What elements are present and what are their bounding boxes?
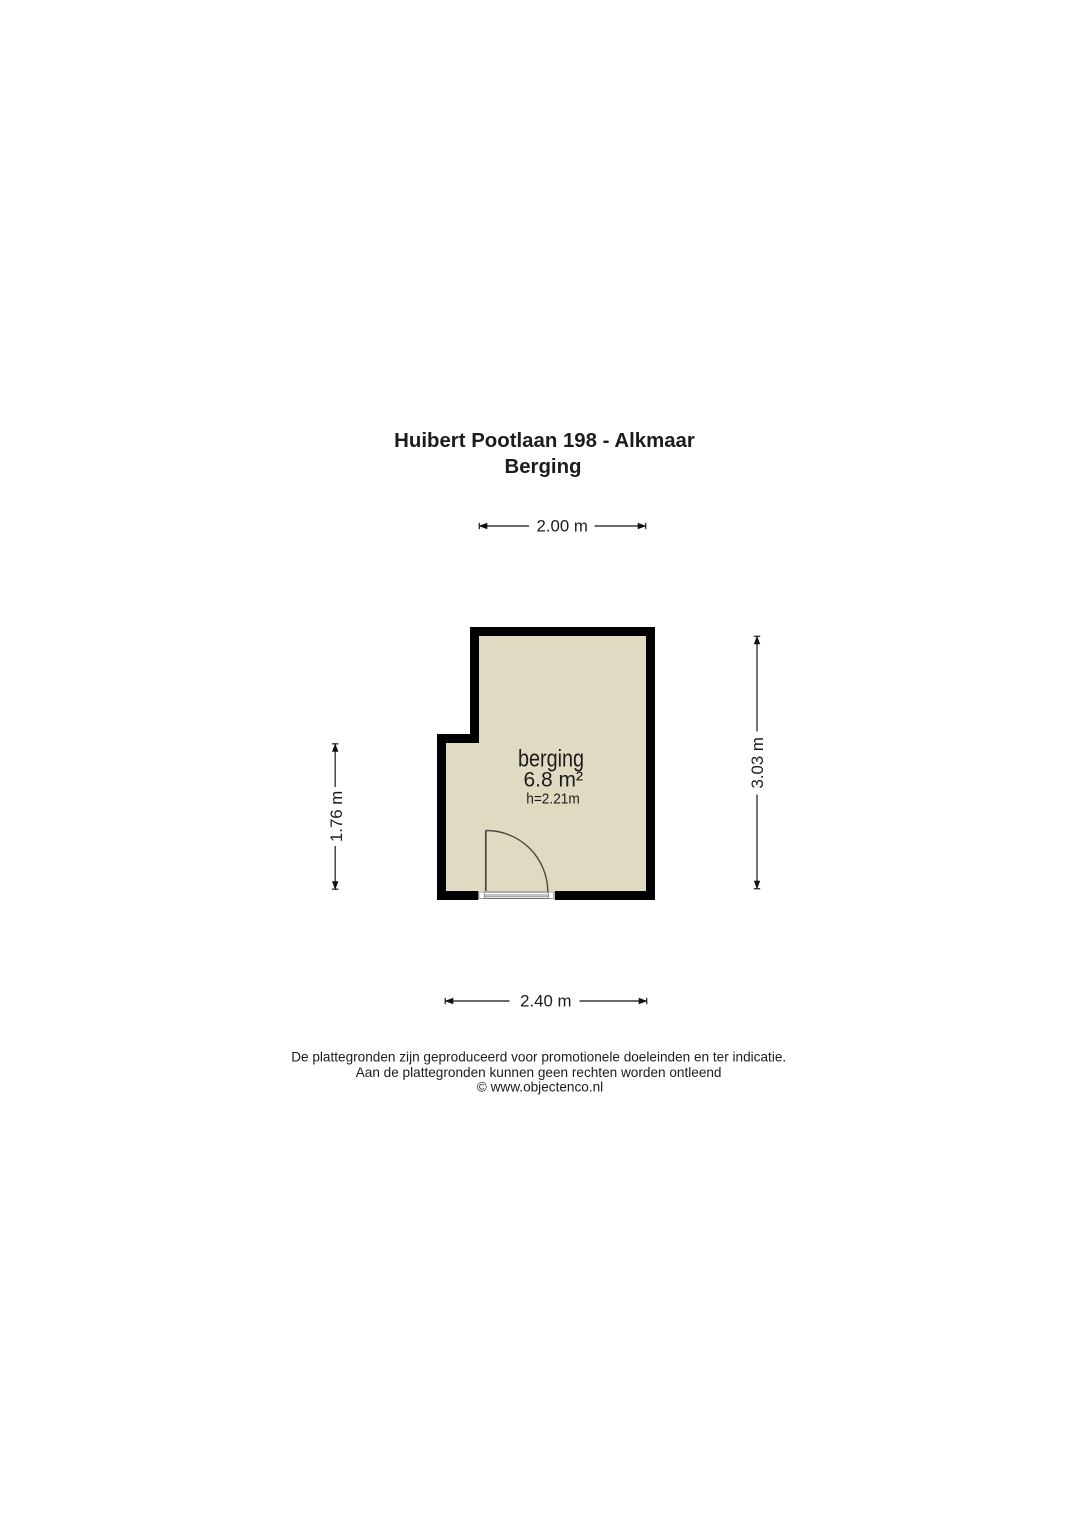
svg-text:2.00 m: 2.00 m xyxy=(537,517,588,536)
svg-text:h=2.21m: h=2.21m xyxy=(526,792,580,808)
svg-text:De plattegronden zijn geproduc: De plattegronden zijn geproduceerd voor … xyxy=(291,1050,786,1065)
svg-text:1.76 m: 1.76 m xyxy=(327,791,346,842)
svg-text:© www.objectenco.nl: © www.objectenco.nl xyxy=(477,1080,603,1095)
svg-text:2.40 m: 2.40 m xyxy=(520,992,571,1011)
svg-text:Huibert Pootlaan 198 - Alkmaar: Huibert Pootlaan 198 - Alkmaar xyxy=(394,430,695,452)
svg-text:6.8 m²: 6.8 m² xyxy=(523,769,583,792)
svg-text:Berging: Berging xyxy=(504,456,581,478)
svg-text:Aan de plattegronden kunnen ge: Aan de plattegronden kunnen geen rechten… xyxy=(356,1065,722,1080)
svg-text:3.03 m: 3.03 m xyxy=(748,737,767,788)
